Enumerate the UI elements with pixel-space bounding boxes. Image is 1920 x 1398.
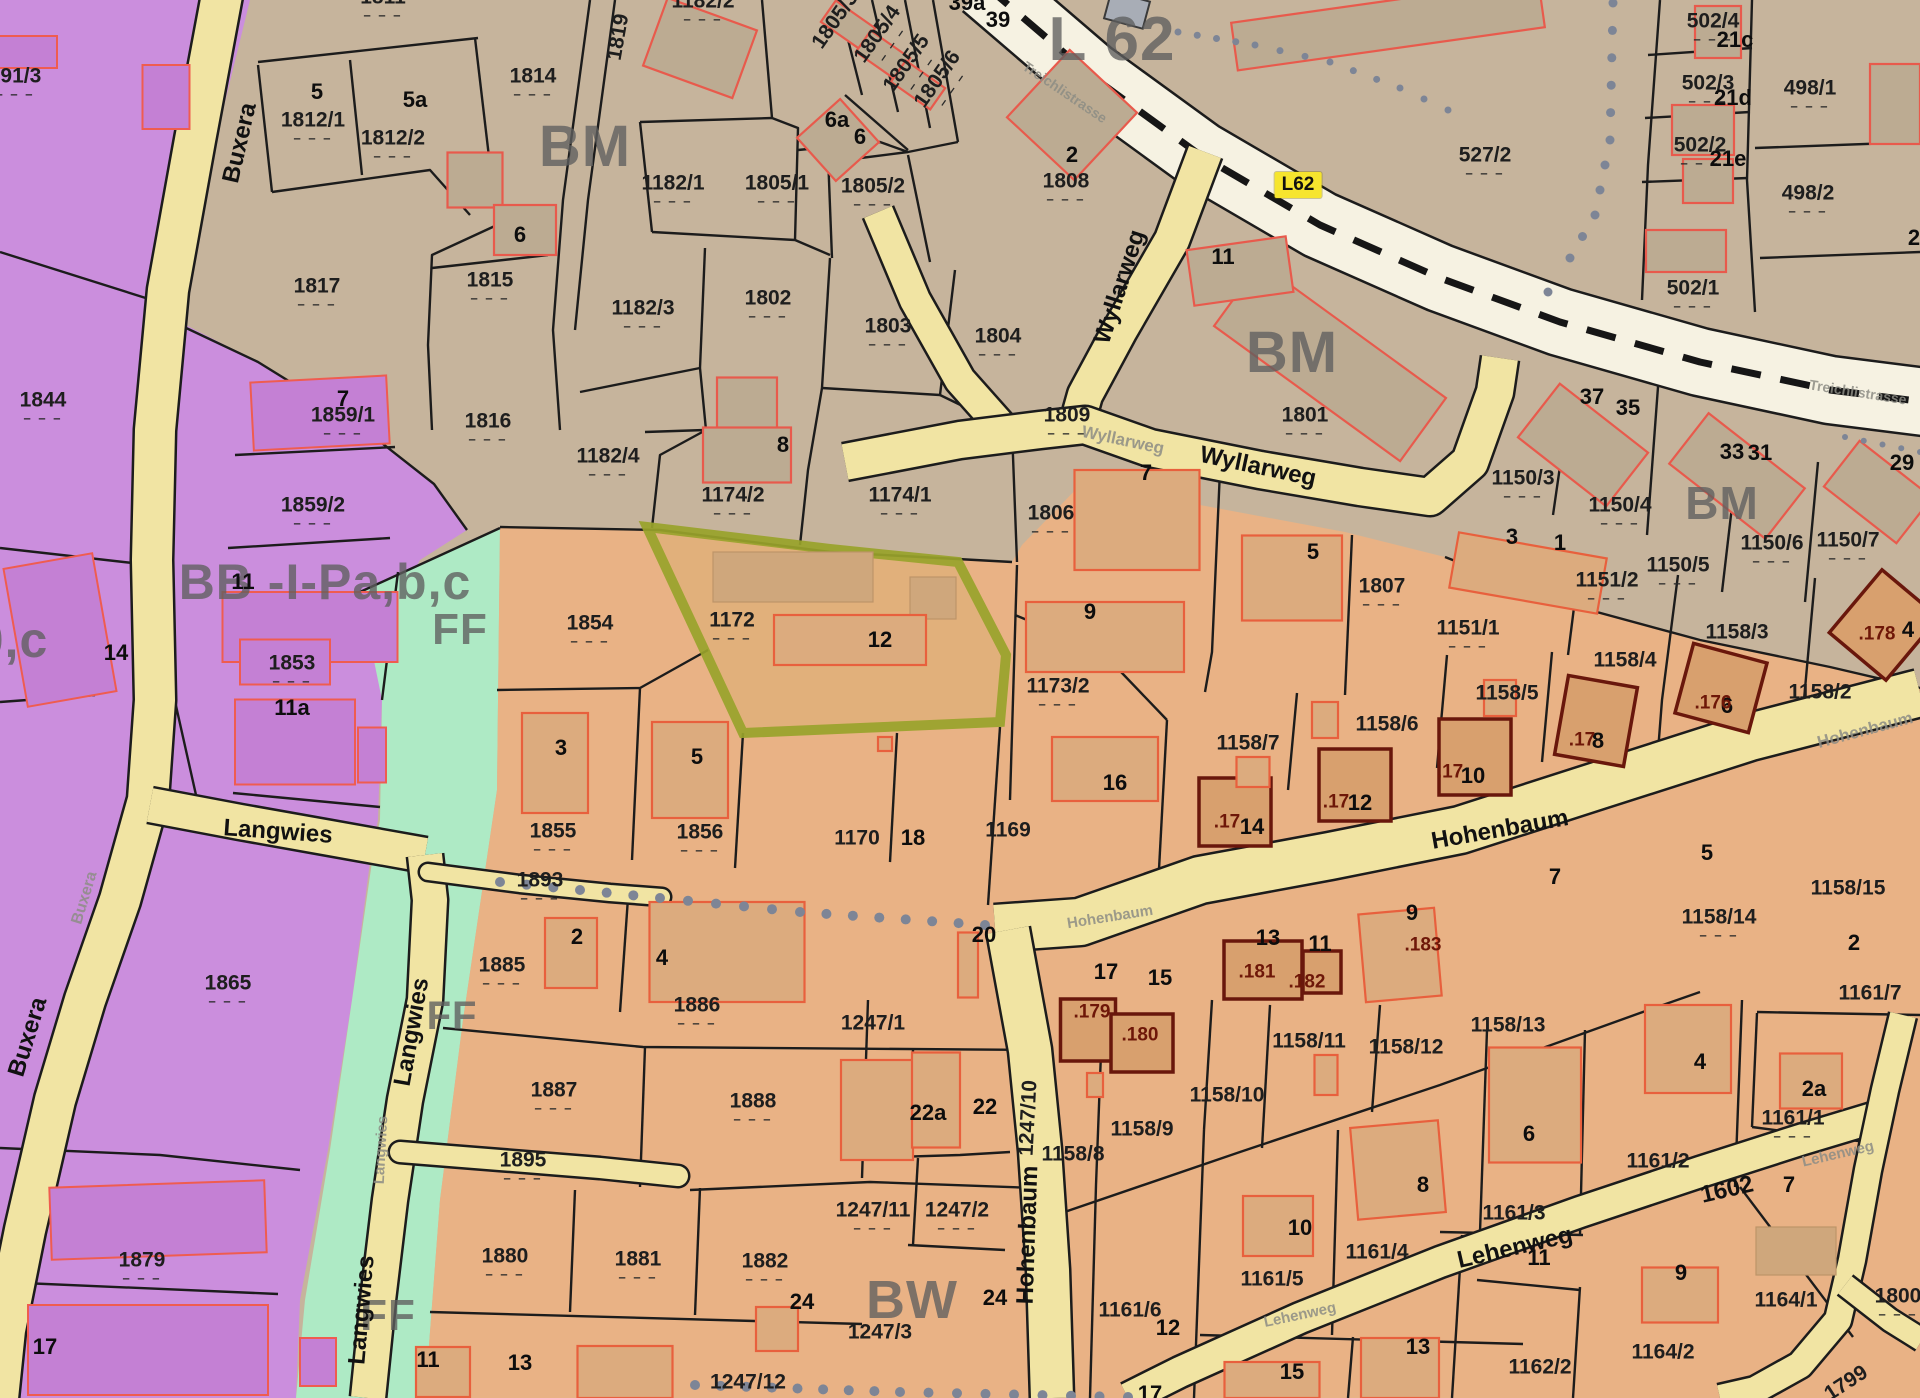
house-number-6a[interactable]: 6a (825, 109, 849, 131)
house-number-7[interactable]: 7 (1549, 866, 1561, 888)
parcel-label-1158-8[interactable]: 1158/8 (1041, 1144, 1104, 1165)
parcel-label-1815[interactable]: 1815– – – (467, 270, 514, 305)
parcel-label-1158-14[interactable]: 1158/14– – – (1682, 907, 1757, 942)
house-number-6[interactable]: 6 (1523, 1123, 1535, 1145)
parcel-label-1247-10[interactable]: 1247/10 (1016, 1080, 1041, 1157)
house-number-15[interactable]: 15 (1148, 967, 1172, 989)
parcel-label-527-2[interactable]: 527/2– – – (1459, 145, 1512, 180)
house-number-20[interactable]: 20 (972, 924, 996, 946)
parcel-label-1812-1[interactable]: 1812/1– – – (281, 110, 345, 145)
house-number-2[interactable]: 2 (1066, 144, 1078, 166)
parcel-label-1158-4[interactable]: 1158/4 (1593, 650, 1656, 671)
building-number-182[interactable]: .182 (1289, 973, 1326, 992)
parcel-label-1182-4[interactable]: 1182/4– – – (576, 446, 639, 481)
parcel-label-1169[interactable]: 1169 (985, 820, 1031, 841)
parcel-label-1806[interactable]: 1806– – – (1028, 503, 1075, 538)
road-label-hohenbaum[interactable]: Hohenbaum (1815, 709, 1914, 751)
house-number-6[interactable]: 6 (514, 224, 526, 246)
road-label-hohenbaum[interactable]: Hohenbaum (1014, 1165, 1043, 1304)
house-number-12[interactable]: 12 (1348, 792, 1372, 814)
parcel-label-1886[interactable]: 1886– – – (674, 995, 721, 1030)
parcel-label-1895[interactable]: 1895– – – (500, 1150, 547, 1185)
parcel-label-1881[interactable]: 1881– – – (615, 1249, 662, 1284)
parcel-label-1885[interactable]: 1885– – – (479, 955, 526, 990)
building-number-179[interactable]: .179 (1074, 1003, 1111, 1022)
road-label-lehenweg[interactable]: Lehenweg (1263, 1300, 1338, 1330)
parcel-label-1161-3[interactable]: 1161/3 (1482, 1203, 1545, 1224)
parcel-label-1174-1[interactable]: 1174/1– – – (868, 485, 931, 520)
house-number-10[interactable]: 10 (1461, 765, 1485, 787)
road-label-buxera[interactable]: Buxera (69, 870, 100, 927)
house-number-4[interactable]: 4 (1902, 619, 1914, 641)
parcel-label-1814[interactable]: 1814– – – (510, 66, 557, 101)
house-number-21c[interactable]: 21c (1717, 29, 1754, 51)
house-number-12[interactable]: 12 (1156, 1317, 1180, 1339)
house-number-5[interactable]: 5 (1701, 842, 1713, 864)
road-label-hohenbaum[interactable]: Hohenbaum (1430, 806, 1571, 854)
parcel-label-1808[interactable]: 1808– – – (1043, 171, 1090, 206)
road-number-badge[interactable]: L62 (1275, 172, 1322, 198)
zone-label-bm: BM (539, 118, 631, 176)
house-number-7[interactable]: 7 (1140, 462, 1152, 484)
house-number-37[interactable]: 37 (1580, 386, 1604, 408)
house-number-4[interactable]: 4 (1694, 1051, 1706, 1073)
house-number-3[interactable]: 3 (1506, 526, 1518, 548)
parcel-label-1805-3[interactable]: 1805/3 (808, 0, 862, 52)
road-label-hohenbaum[interactable]: Hohenbaum (1066, 903, 1154, 931)
parcel-label-1150-6[interactable]: 1150/6– – – (1740, 533, 1803, 568)
parcel-label-1158-13[interactable]: 1158/13 (1471, 1015, 1546, 1036)
parcel-label-1158-2[interactable]: 1158/2 (1788, 682, 1851, 703)
parcel-label-1816[interactable]: 1816– – – (465, 411, 512, 446)
parcel-label-1158-6[interactable]: 1158/6 (1355, 714, 1418, 735)
parcel-label-1859-2[interactable]: 1859/2– – – (281, 495, 345, 530)
building-number-17[interactable]: .17 (1214, 813, 1240, 832)
house-number-6[interactable]: 6 (854, 126, 866, 148)
parcel-label-1174-2[interactable]: 1174/2– – – (701, 485, 764, 520)
road-label-wyllarweg[interactable]: Wyllarweg (1080, 423, 1165, 457)
parcel-label-1164-1[interactable]: 1164/1 (1754, 1290, 1817, 1311)
parcel-label-1811[interactable]: 1811– – – (360, 0, 406, 22)
parcel-label-1161-4[interactable]: 1161/4 (1345, 1242, 1408, 1263)
map-canvas[interactable]: BMBMBML 62BB -I-Pa,b,c0,cFFFFFFBW191/3– … (0, 0, 1920, 1398)
zone-label-bm: BM (1246, 324, 1338, 382)
house-number-7[interactable]: 7 (337, 388, 349, 410)
parcel-label-502-1[interactable]: 502/1– – – (1667, 278, 1720, 313)
building-number-178[interactable]: .178 (1859, 625, 1896, 644)
house-number-22a[interactable]: 22a (910, 1102, 947, 1124)
parcel-label-1800[interactable]: 1800– – – (1875, 1286, 1920, 1321)
parcel-label-1161-5[interactable]: 1161/5 (1240, 1269, 1303, 1290)
parcel-label-1150-3[interactable]: 1150/3– – – (1491, 468, 1554, 503)
house-number-21e[interactable]: 21e (1710, 148, 1747, 170)
road-label-1602[interactable]: 1602 (1698, 1172, 1755, 1207)
parcel-label-1247-1[interactable]: 1247/1 (841, 1013, 905, 1034)
house-number-29[interactable]: 29 (1890, 452, 1914, 474)
building-number-183[interactable]: .183 (1405, 936, 1442, 955)
parcel-label-1150-7[interactable]: 1150/7– – – (1816, 530, 1879, 565)
parcel-label-1158-7[interactable]: 1158/7 (1216, 733, 1279, 754)
zone-label-0-c: 0,c (0, 615, 48, 665)
house-number-17[interactable]: 17 (1138, 1383, 1162, 1398)
house-number-8[interactable]: 8 (1417, 1174, 1429, 1196)
parcel-label-1161-1[interactable]: 1161/1– – – (1761, 1108, 1824, 1143)
parcel-label-1855[interactable]: 1855– – – (530, 821, 577, 856)
house-number-14[interactable]: 14 (104, 642, 128, 664)
parcel-label-1170[interactable]: 1170 (834, 828, 880, 849)
parcel-label-1801[interactable]: 1801– – – (1282, 405, 1329, 440)
house-number-4[interactable]: 4 (656, 947, 668, 969)
parcel-label-498-1[interactable]: 498/1– – – (1784, 78, 1837, 113)
road-label-wyllarweg[interactable]: Wyllarweg (1090, 227, 1149, 347)
map-labels-layer: BMBMBML 62BB -I-Pa,b,c0,cFFFFFFBW191/3– … (0, 0, 1920, 1398)
parcel-label-1879[interactable]: 1879– – – (119, 1250, 166, 1285)
house-number-2[interactable]: 2 (571, 926, 583, 948)
house-number-16[interactable]: 16 (1103, 772, 1127, 794)
house-number-5[interactable]: 5 (691, 746, 703, 768)
house-number-24[interactable]: 24 (983, 1287, 1007, 1309)
parcel-label-1161-2[interactable]: 1161/2 (1626, 1151, 1689, 1172)
parcel-label-1247-12[interactable]: 1247/12– – – (710, 1372, 786, 1398)
house-number-31[interactable]: 31 (1748, 442, 1772, 464)
parcel-label-1158-9[interactable]: 1158/9 (1110, 1119, 1173, 1140)
house-number-17[interactable]: 17 (1094, 961, 1118, 983)
house-number-22[interactable]: 22 (973, 1096, 997, 1118)
parcel-label-1799[interactable]: 1799 (1821, 1361, 1872, 1398)
house-number-11[interactable]: 11 (1211, 246, 1234, 268)
road-label-buxera[interactable]: Buxera (219, 101, 261, 186)
house-number-14[interactable]: 14 (1240, 816, 1264, 838)
house-number-21d[interactable]: 21d (1714, 87, 1752, 109)
parcel-label-1803[interactable]: 1803– – – (865, 316, 912, 351)
parcel-label-1161-6[interactable]: 1161/6 (1098, 1300, 1161, 1321)
house-number-11[interactable]: 11 (416, 1349, 439, 1371)
house-number-5a[interactable]: 5a (403, 89, 427, 111)
house-number-13[interactable]: 13 (1256, 927, 1280, 949)
parcel-label-1865[interactable]: 1865– – – (205, 973, 252, 1008)
parcel-label-498-2[interactable]: 498/2– – – (1782, 183, 1835, 218)
parcel-label-1247-2[interactable]: 1247/2– – – (925, 1200, 989, 1235)
parcel-label-1856[interactable]: 1856– – – (677, 822, 724, 857)
house-number-33[interactable]: 33 (1720, 441, 1744, 463)
house-number-3[interactable]: 3 (555, 737, 567, 759)
building-number-17[interactable]: .17 (1437, 763, 1463, 782)
building-number-180[interactable]: .180 (1122, 1026, 1159, 1045)
parcel-label-1882[interactable]: 1882– – – (742, 1251, 789, 1286)
parcel-label-1854[interactable]: 1854– – – (567, 613, 614, 648)
parcel-label-1158-5[interactable]: 1158/5 (1475, 683, 1538, 704)
parcel-label-1247-3[interactable]: 1247/3 (848, 1322, 912, 1343)
house-number-9[interactable]: 9 (1675, 1262, 1687, 1284)
building-number-181[interactable]: .181 (1239, 963, 1276, 982)
parcel-label-1172[interactable]: 1172– – – (709, 610, 755, 645)
house-number-2[interactable]: 2 (1908, 227, 1920, 249)
house-number-35[interactable]: 35 (1616, 397, 1640, 419)
house-number-5[interactable]: 5 (1307, 541, 1319, 563)
parcel-label-1888[interactable]: 1888– – – (730, 1091, 777, 1126)
parcel-label-1853[interactable]: 1853– – – (269, 653, 316, 688)
parcel-label-1247-11[interactable]: 1247/11– – – (836, 1200, 911, 1235)
zone-label-bm: BM (1685, 480, 1759, 526)
road-label-treichlistrasse[interactable]: Treichlistrasse (1808, 377, 1907, 406)
house-number-10[interactable]: 10 (1288, 1217, 1312, 1239)
parcel-label-1150-4[interactable]: 1150/4– – – (1588, 495, 1651, 530)
house-number-13[interactable]: 13 (1406, 1336, 1430, 1358)
parcel-label-1893[interactable]: 1893– – – (517, 870, 564, 905)
road-label-langwies[interactable]: Langwies (372, 1115, 391, 1184)
house-number-5[interactable]: 5 (311, 81, 323, 103)
house-number-11a[interactable]: 11a (274, 697, 310, 719)
parcel-label-1817[interactable]: 1817– – – (294, 276, 341, 311)
zone-label-bw: BW (866, 1273, 958, 1327)
parcel-label-1880[interactable]: 1880– – – (482, 1246, 529, 1281)
house-number-15[interactable]: 15 (1280, 1361, 1304, 1383)
parcel-label-1162-2[interactable]: 1162/2 (1508, 1357, 1571, 1378)
house-number-39a[interactable]: 39a (949, 0, 986, 14)
parcel-label-1158-12[interactable]: 1158/12 (1369, 1037, 1444, 1058)
house-number-17[interactable]: 17 (33, 1336, 57, 1358)
parcel-label-1173-2[interactable]: 1173/2– – – (1026, 676, 1089, 711)
road-label-langwies[interactable]: Langwies (223, 816, 334, 848)
house-number-9[interactable]: 9 (1084, 601, 1096, 623)
building-number-17[interactable]: .17 (1569, 731, 1595, 750)
parcel-label-1805-2[interactable]: 1805/2– – – (841, 176, 905, 211)
house-number-12[interactable]: 12 (868, 629, 892, 651)
zone-label-ff: FF (432, 608, 488, 652)
house-number-2a[interactable]: 2a (1802, 1078, 1826, 1100)
parcel-label-1802[interactable]: 1802– – – (745, 288, 792, 323)
house-number-18[interactable]: 18 (901, 827, 925, 849)
house-number-1[interactable]: 1 (1554, 532, 1566, 554)
parcel-label-1151-1[interactable]: 1151/1– – – (1436, 618, 1499, 653)
parcel-label-1158-11[interactable]: 1158/11 (1272, 1031, 1346, 1052)
road-label-lehenweg[interactable]: Lehenweg (1455, 1223, 1575, 1273)
house-number-39[interactable]: 39 (986, 9, 1010, 31)
zone-label-bb-i-pa-b-c: BB -I-Pa,b,c (179, 557, 472, 607)
parcel-label-1182-1[interactable]: 1182/1– – – (641, 173, 704, 208)
parcel-label-191-3[interactable]: 191/3– – – (0, 66, 41, 101)
house-number-2[interactable]: 2 (1848, 932, 1860, 954)
parcel-label-1805-1[interactable]: 1805/1– – – (745, 173, 809, 208)
road-label-langwies[interactable]: Langwies (345, 1254, 378, 1365)
parcel-label-1887[interactable]: 1887– – – (531, 1080, 578, 1115)
house-number-7[interactable]: 7 (1783, 1174, 1795, 1196)
parcel-label-1151-2[interactable]: 1151/2– – – (1575, 570, 1638, 605)
house-number-11[interactable]: 11 (231, 571, 254, 593)
parcel-label-1164-2[interactable]: 1164/2 (1631, 1342, 1694, 1363)
parcel-label-1812-2[interactable]: 1812/2– – – (361, 128, 425, 163)
building-number-17[interactable]: .17 (1323, 793, 1349, 812)
road-label-buxera[interactable]: Buxera (5, 995, 52, 1080)
parcel-label-1158-10[interactable]: 1158/10 (1190, 1085, 1265, 1106)
house-number-11[interactable]: 11 (1308, 933, 1331, 955)
parcel-label-1807[interactable]: 1807– – – (1359, 576, 1406, 611)
parcel-label-1161-7[interactable]: 1161/7 (1838, 983, 1901, 1004)
parcel-label-1182-2[interactable]: 1182/2– – – (671, 0, 734, 26)
parcel-label-1150-5[interactable]: 1150/5– – – (1646, 555, 1709, 590)
house-number-13[interactable]: 13 (508, 1352, 532, 1374)
house-number-9[interactable]: 9 (1406, 902, 1418, 924)
parcel-label-1158-3[interactable]: 1158/3 (1705, 622, 1768, 643)
parcel-label-1182-3[interactable]: 1182/3– – – (611, 298, 674, 333)
parcel-label-1158-15[interactable]: 1158/15 (1811, 878, 1886, 899)
road-label-wyllarweg[interactable]: Wyllarweg (1198, 443, 1319, 491)
building-number-176[interactable]: .176 (1695, 694, 1732, 713)
parcel-label-1844[interactable]: 1844– – – (20, 390, 67, 425)
house-number-24[interactable]: 24 (790, 1291, 814, 1313)
parcel-label-1804[interactable]: 1804– – – (975, 326, 1022, 361)
zone-label-l-62: L 62 (1049, 9, 1176, 71)
house-number-8[interactable]: 8 (777, 434, 789, 456)
parcel-label-1819[interactable]: 1819 (604, 12, 633, 62)
zone-label-ff: FF (427, 996, 478, 1036)
